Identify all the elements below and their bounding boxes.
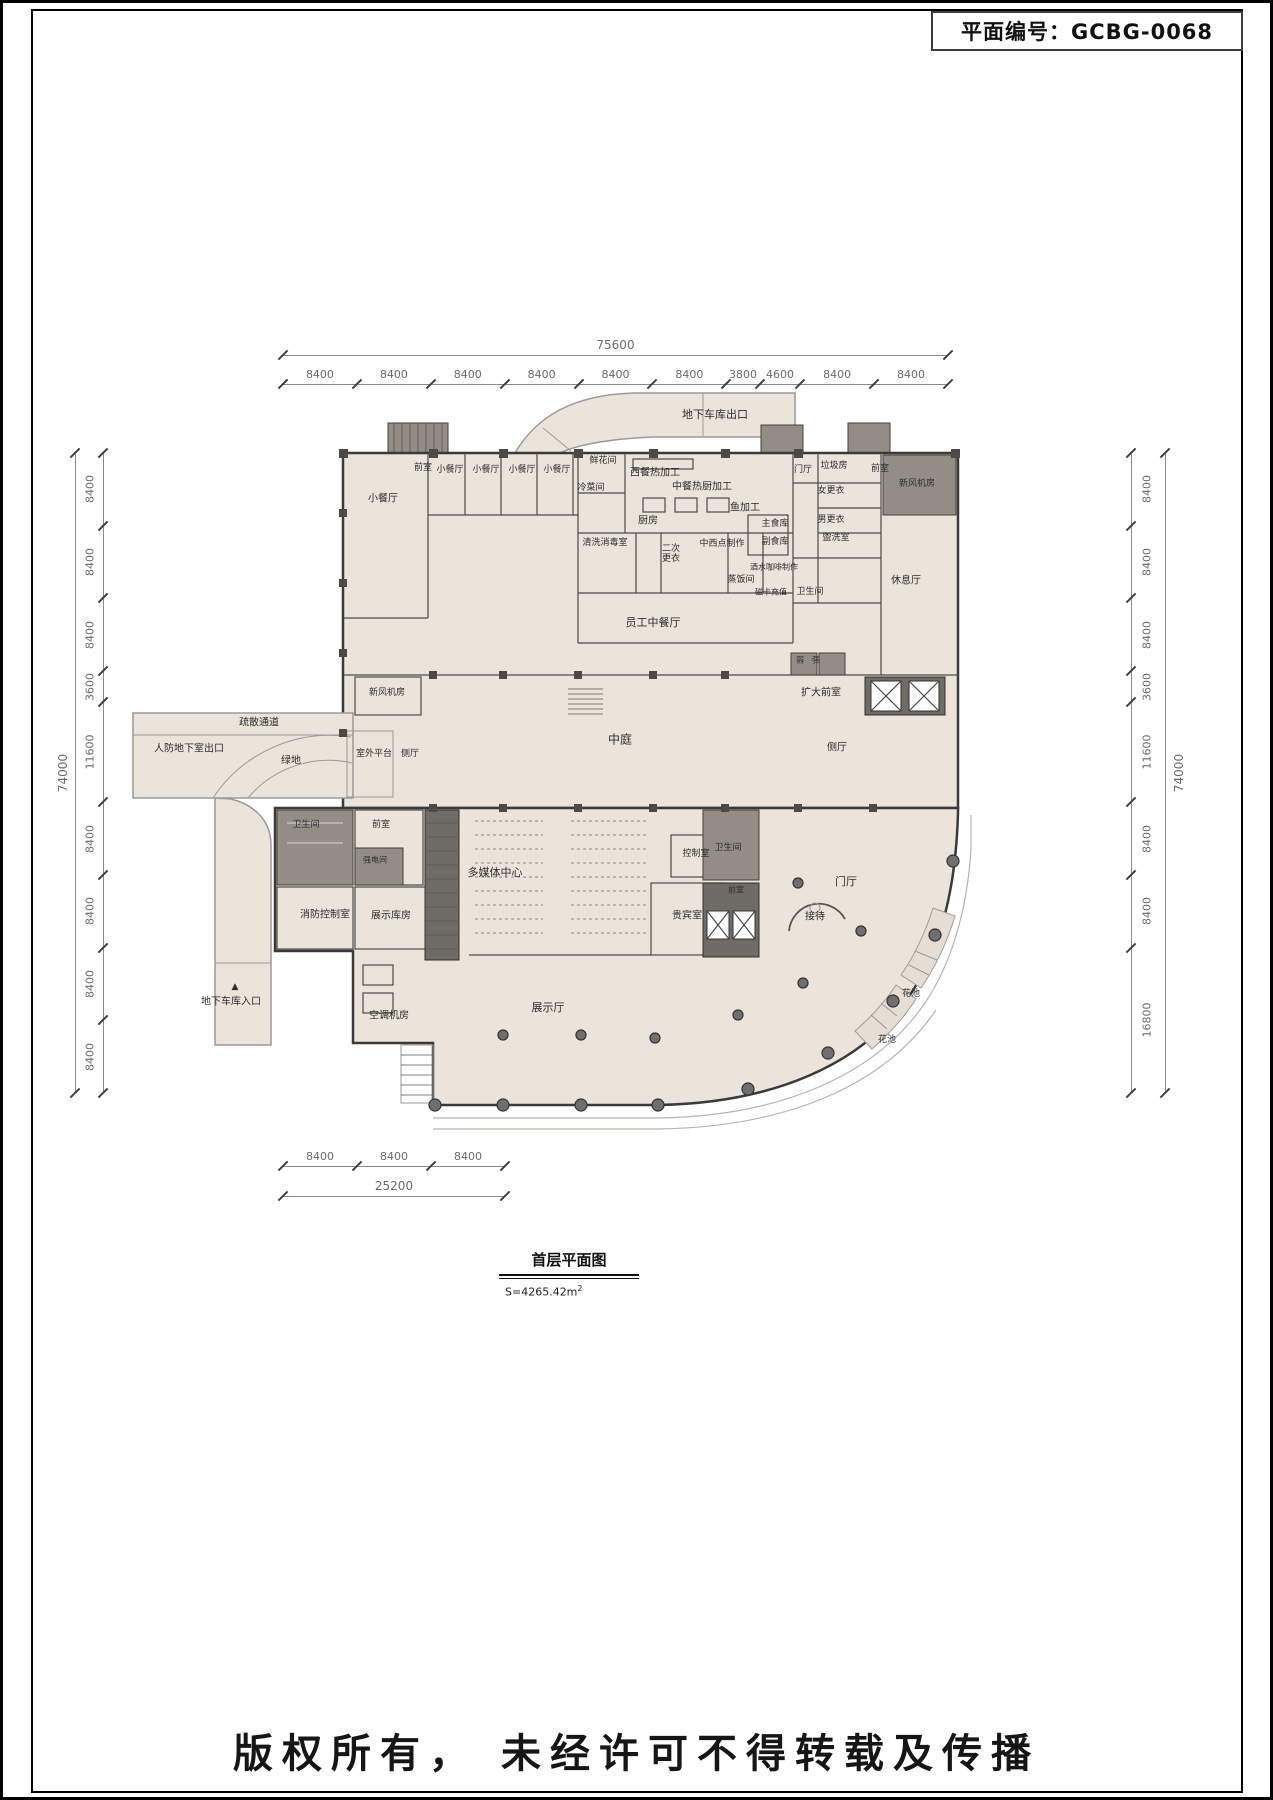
room-label: 主食库 [761,520,788,530]
room-label: 扩大前室 [801,688,841,699]
room-label: 休息厅 [891,576,921,587]
room-label: 小餐厅 [543,466,570,476]
dimension-label: 8400 [1141,825,1154,853]
dimension-label: 75600 [596,338,634,352]
dimension-label: 3600 [1141,673,1154,701]
dimension-label: 8400 [454,368,482,381]
room-label: 接待 [805,912,825,923]
copyright-banner: 版权所有， 未经许可不得转载及传播 [43,1721,1230,1779]
room-label: 弱 [796,657,804,666]
room-label: 卫生间 [796,588,823,598]
room-label: 鱼加工 [730,503,760,514]
drawing-area: S=4265.42m2 [499,1284,639,1299]
room-label: 西餐热加工 [630,468,680,479]
room-label: 侧厅 [827,743,847,754]
room-label: 小餐厅 [368,494,398,505]
dimension-label: 8400 [1141,897,1154,925]
dimension-label: 16800 [1141,1003,1154,1038]
room-label: 卫生间 [292,821,319,831]
room-label: 多媒体中心 [468,867,523,879]
room-label: 前室 [728,887,744,896]
dimension-label: 8400 [84,825,97,853]
dimension-label: 11600 [1141,735,1154,770]
room-label: 女更衣 [817,487,844,497]
room-label: 二次 更衣 [662,545,680,565]
room-label: 强电间 [363,857,387,866]
room-label: 蒸饭间 [727,576,754,586]
room-label: 强 [812,657,820,666]
room-label: 员工中餐厅 [626,617,681,629]
room-label: 副食库 [761,538,788,548]
room-label: 控制室 [682,850,709,860]
room-label: 中庭 [608,733,632,746]
room-label: 人防地下室出口 [154,744,224,755]
drawing-title-block: 首层平面图 S=4265.42m2 [499,1249,639,1299]
room-label: 清洗消毒室 [582,539,627,549]
room-label: 地下车库出口 [682,409,748,421]
dimension-label: 11600 [84,735,97,770]
dimension-line [283,1166,505,1167]
room-label: 盥洗室 [822,534,849,544]
floor-plan-drawing [3,3,1273,1343]
dimension-label: 8400 [1141,548,1154,576]
dimension-label: 74000 [56,754,70,792]
room-label: 侧厅 [401,750,419,760]
room-label: 中西点制作 [699,540,744,550]
room-label: 消防控制室 [300,910,350,921]
dimension-label: 3800 [729,368,757,381]
title-underline [499,1278,639,1279]
dimension-label: 8400 [675,368,703,381]
room-label: 小餐厅 [472,466,499,476]
dimension-label: 8400 [897,368,925,381]
dimension-line [103,453,104,1093]
dimension-label: 8400 [84,475,97,503]
room-label: 室外平台 [356,750,392,760]
dimension-line [283,355,948,356]
garage-exit-ramp [515,393,795,453]
room-label: 空调机房 [369,1011,409,1022]
dimension-line [75,453,76,1093]
room-label: 小餐厅 [508,466,535,476]
room-label: 展示库房 [371,911,411,922]
dimension-label: 4600 [766,368,794,381]
dimension-label: 8400 [602,368,630,381]
room-label: 中餐热厨加工 [672,482,732,493]
dimension-label: 8400 [84,621,97,649]
room-label: 前室 [871,465,889,475]
room-label: 花池 [902,990,920,1000]
room-label: 门厅 [794,466,812,476]
room-label: 花池 [878,1036,896,1046]
room-label: 酒水咖啡制作 [750,564,798,573]
room-label: 疏散通道 [239,718,279,729]
dimension-line [283,384,948,385]
room-label: 地下车库入口 [201,997,261,1008]
room-label: 门厅 [835,876,857,888]
dimension-label: 8400 [84,970,97,998]
room-label: 新风机房 [899,480,935,490]
dimension-label: 74000 [1172,754,1186,792]
dimension-label: 8400 [528,368,556,381]
dimension-label: 25200 [375,1179,413,1193]
room-label: 小餐厅 [436,466,463,476]
room-label: 冷菜间 [577,484,604,494]
room-label: ▲ [232,983,239,993]
drawing-title: 首层平面图 [499,1249,639,1276]
dimension-label: 8400 [823,368,851,381]
dimension-label: 8400 [1141,621,1154,649]
dimension-label: 8400 [454,1150,482,1163]
dimension-label: 8400 [84,548,97,576]
room-label: 前室 [414,464,432,474]
dimension-label: 8400 [306,368,334,381]
dimension-label: 3600 [84,673,97,701]
dimension-line [283,1196,505,1197]
dimension-line [1131,453,1132,1093]
dimension-label: 8400 [306,1150,334,1163]
sheet: 平面编号：GCBG-0068 [0,0,1273,1800]
room-label: 展示厅 [532,1002,565,1014]
dimension-line [1165,453,1166,1093]
dimension-label: 8400 [84,1043,97,1071]
room-label: 磁卡充值 [755,589,787,598]
room-label: 绿地 [281,756,301,767]
dimension-label: 8400 [1141,475,1154,503]
dimension-label: 8400 [380,368,408,381]
room-label: 贵宾室 [672,911,702,922]
room-label: 新风机房 [369,689,405,699]
room-label: 卫生间 [714,844,741,854]
room-label: 前室 [372,821,390,831]
room-label: 鲜花间 [589,457,616,467]
room-label: 厨房 [638,516,658,527]
room-label: 垃圾房 [820,462,847,472]
room-label: 男更衣 [817,516,844,526]
dimension-label: 8400 [84,897,97,925]
dimension-label: 8400 [380,1150,408,1163]
